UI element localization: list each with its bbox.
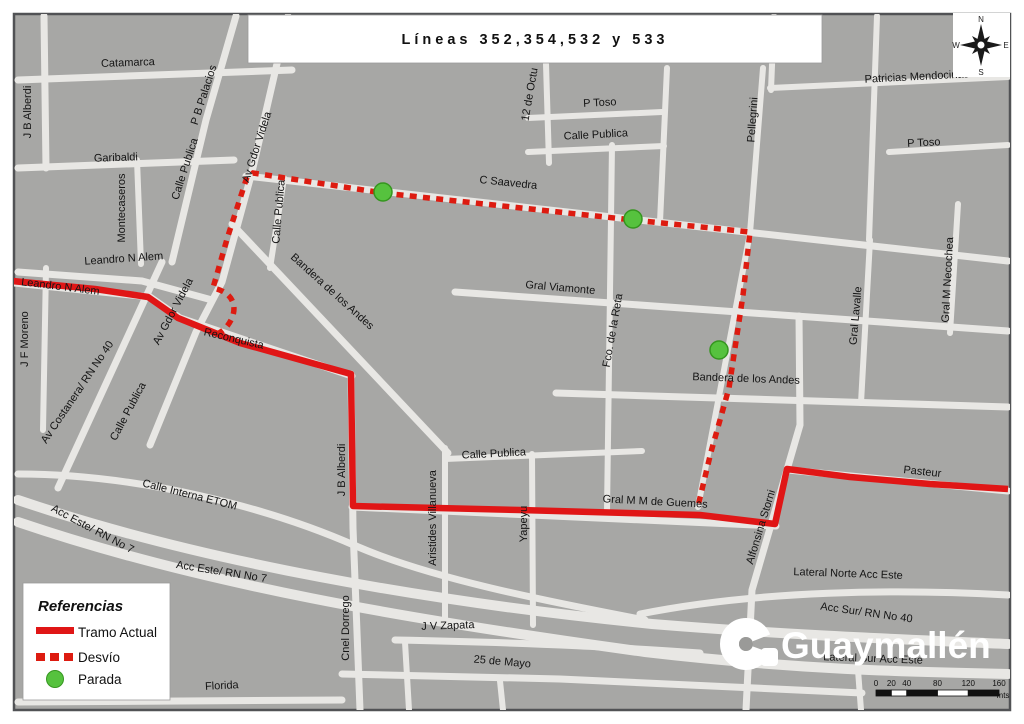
legend: Referencias Tramo Actual Desvío Parada	[23, 583, 170, 700]
compass-rose: N E S W	[952, 13, 1010, 77]
street-label: Catamarca	[101, 56, 156, 70]
compass-south: S	[978, 68, 983, 77]
street-label: J B Alberdi	[336, 444, 348, 497]
legend-dashed-line-symbol	[36, 653, 73, 661]
bus-stop-marker	[624, 210, 642, 228]
logo-wordmark: Guaymallén	[781, 625, 991, 666]
scale-tick-label: 160	[992, 679, 1006, 688]
legend-stop-symbol	[47, 671, 64, 688]
bus-stop-marker	[710, 341, 728, 359]
street-label: Florida	[205, 679, 240, 693]
route-map-page: CatamarcaJ B AlberdiGaribaldiMontecasero…	[0, 0, 1024, 724]
street-label: Yapeyu	[518, 506, 530, 543]
street-label: P Toso	[583, 96, 617, 110]
legend-item-label: Desvío	[78, 650, 120, 665]
street-label: Cnel Dorrego	[340, 595, 352, 660]
legend-solid-line-symbol	[36, 627, 74, 634]
legend-item-label: Parada	[78, 672, 122, 687]
legend-title: Referencias	[38, 598, 123, 615]
compass-west: W	[952, 41, 960, 50]
street-label: Garibaldi	[94, 151, 138, 165]
street-label: J F Moreno	[19, 311, 31, 367]
map-canvas: CatamarcaJ B AlberdiGaribaldiMontecasero…	[0, 0, 1024, 724]
scale-segment	[968, 690, 999, 696]
bus-stop-marker	[374, 183, 392, 201]
street-label: P Toso	[907, 136, 941, 150]
scale-tick-label: 40	[902, 679, 911, 688]
scale-segment	[907, 690, 938, 696]
scale-segment	[891, 690, 906, 696]
scale-tick-label: 80	[933, 679, 942, 688]
scale-unit: mts	[997, 691, 1010, 700]
scale-tick-label: 0	[874, 679, 879, 688]
scale-tick-label: 20	[887, 679, 896, 688]
compass-east: E	[1003, 41, 1008, 50]
title-box: Líneas 352,354,532 y 533	[248, 15, 822, 63]
street-label: Montecaseros	[116, 173, 128, 243]
street-label: Aristides Villanueva	[427, 469, 439, 566]
legend-item-label: Tramo Actual	[78, 625, 157, 640]
street-label: J B Alberdi	[22, 86, 34, 139]
scale-segment	[876, 690, 891, 696]
map-title: Líneas 352,354,532 y 533	[402, 32, 669, 48]
compass-north: N	[978, 15, 984, 24]
scale-tick-label: 120	[962, 679, 976, 688]
street-label: J V Zapata	[421, 619, 475, 633]
scale-segment	[938, 690, 969, 696]
